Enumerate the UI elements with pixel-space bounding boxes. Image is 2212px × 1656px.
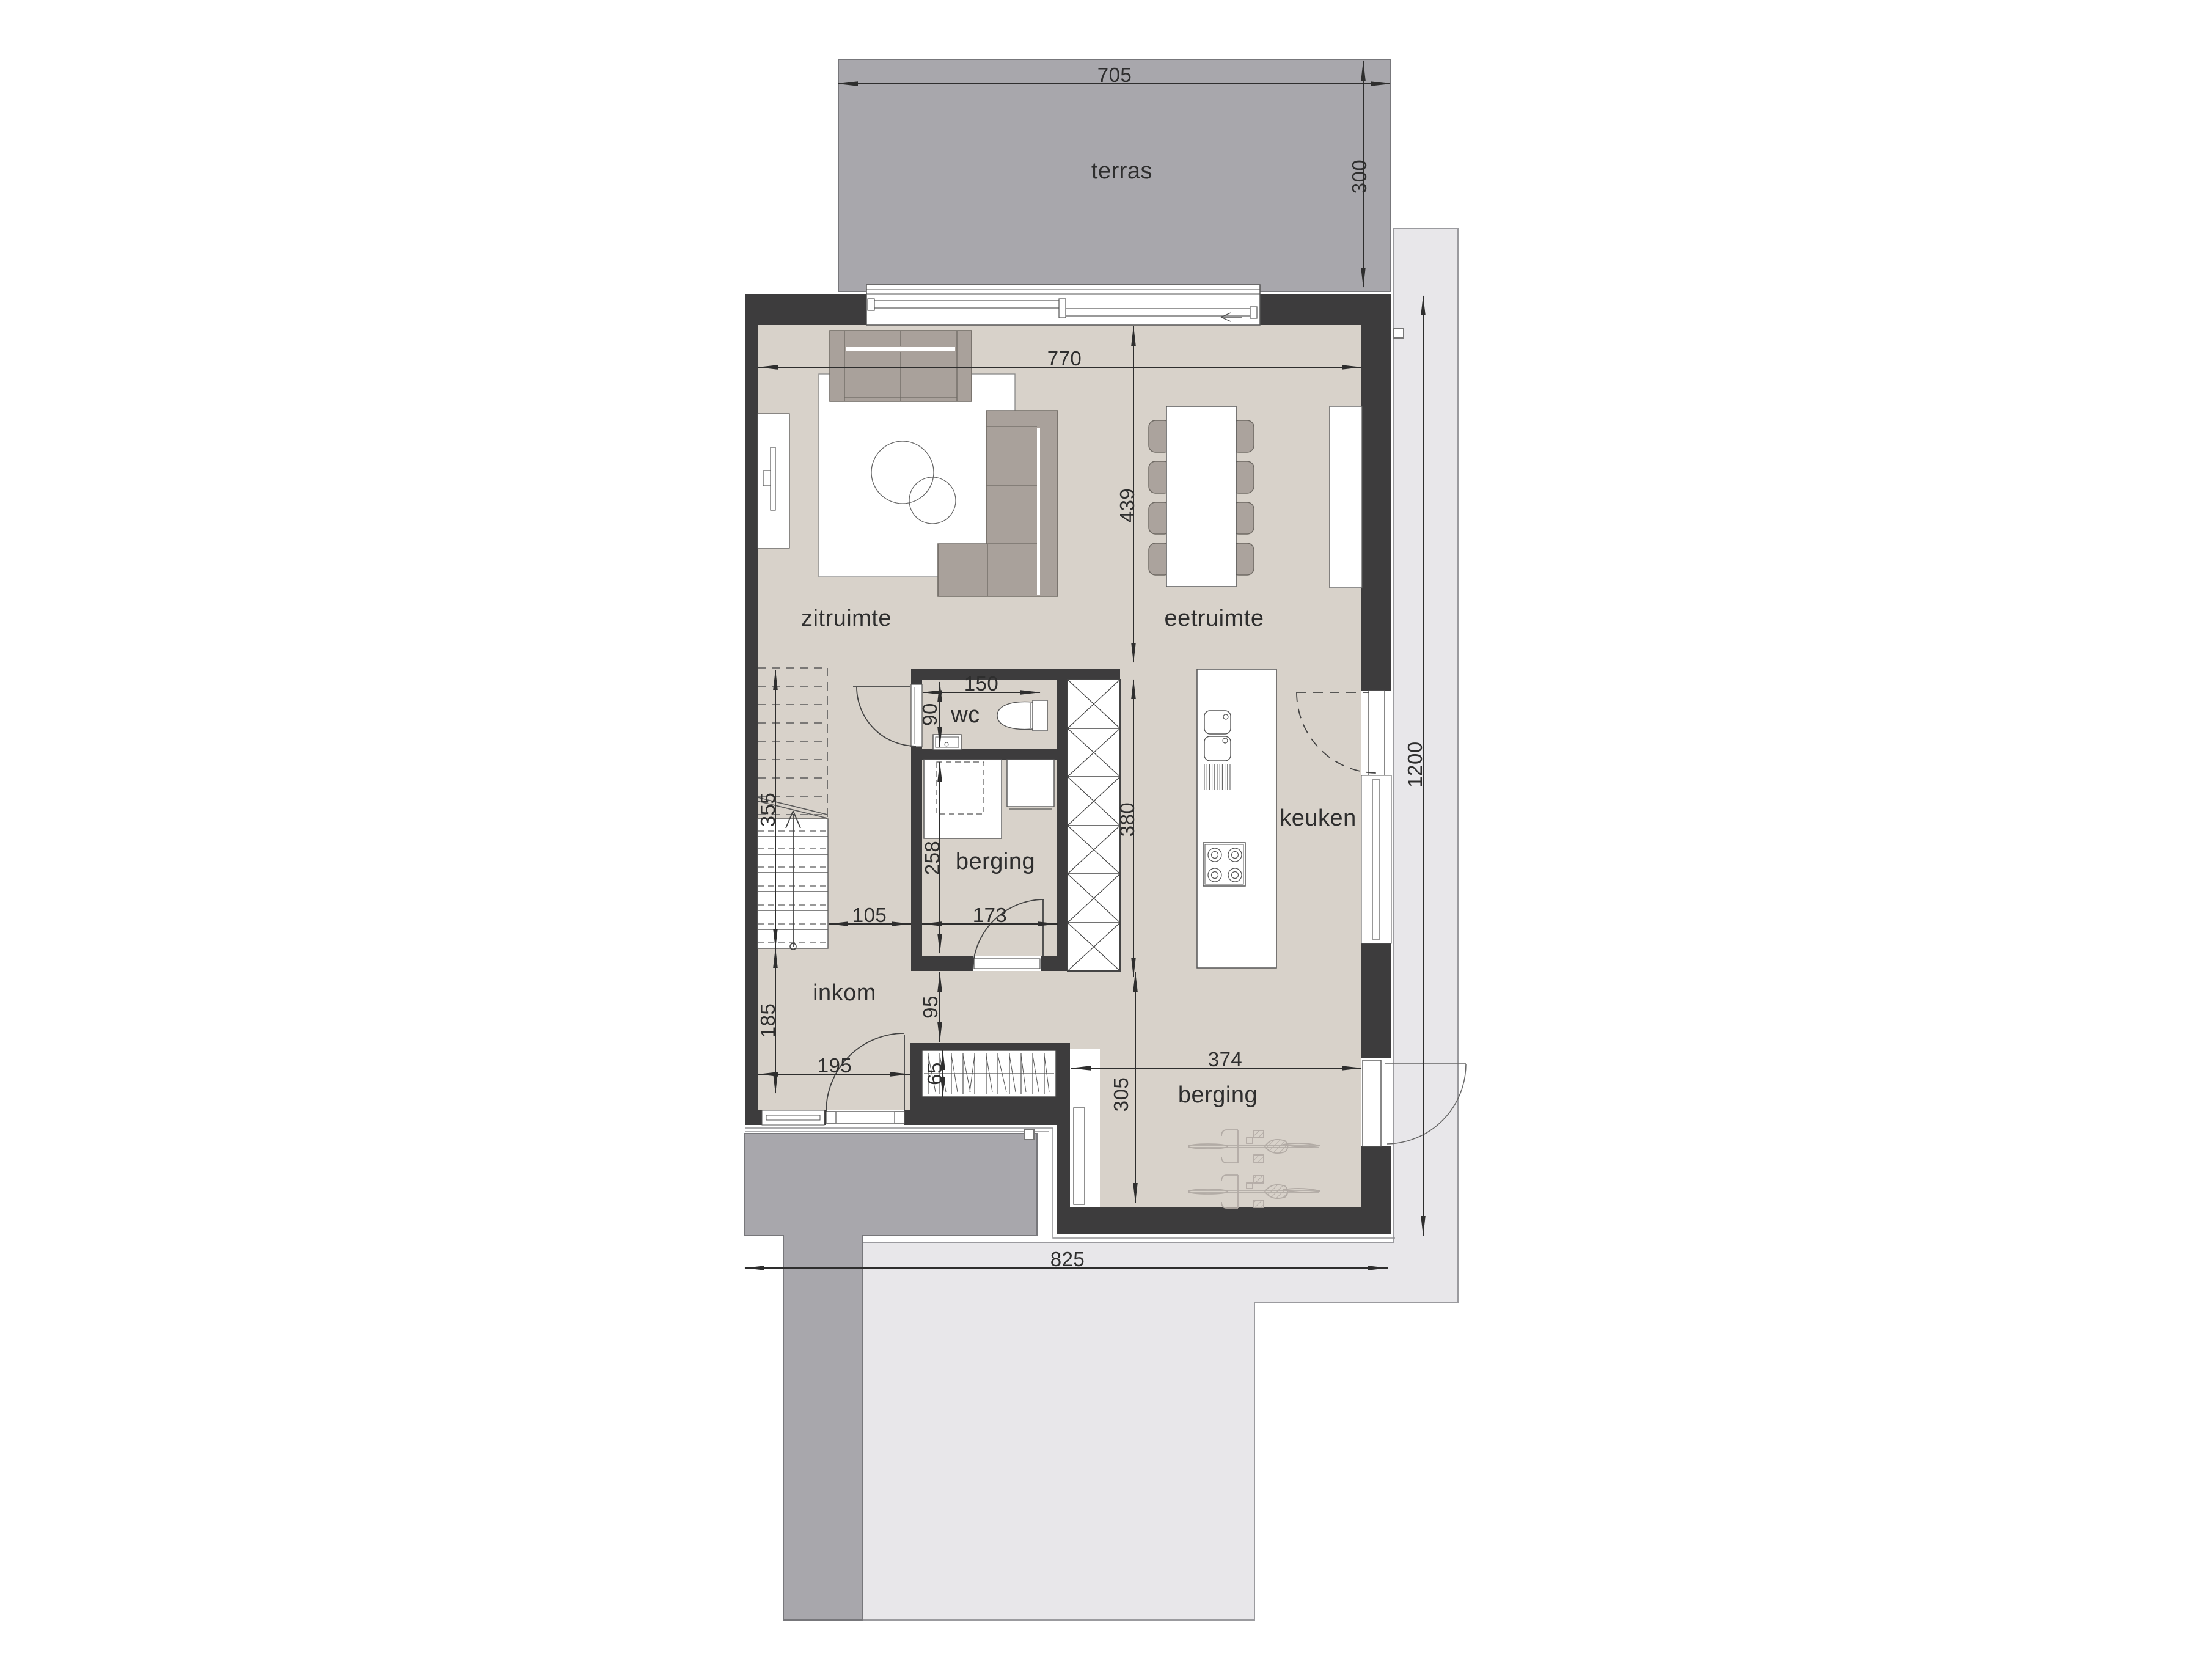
svg-text:173: 173 xyxy=(973,904,1008,926)
svg-text:95: 95 xyxy=(919,995,942,1019)
svg-text:305: 305 xyxy=(1110,1077,1132,1112)
svg-text:inkom: inkom xyxy=(813,980,876,1006)
svg-text:1200: 1200 xyxy=(1404,741,1426,787)
svg-text:eetruimte: eetruimte xyxy=(1165,606,1264,631)
svg-text:300: 300 xyxy=(1348,159,1371,194)
svg-text:keuken: keuken xyxy=(1280,805,1357,831)
svg-text:zitruimte: zitruimte xyxy=(801,606,892,631)
svg-text:65: 65 xyxy=(923,1062,946,1085)
svg-text:825: 825 xyxy=(1050,1248,1085,1270)
svg-text:berging: berging xyxy=(1178,1082,1258,1108)
svg-text:terras: terras xyxy=(1091,158,1152,184)
svg-text:770: 770 xyxy=(1047,347,1082,370)
svg-text:355: 355 xyxy=(756,793,779,827)
svg-text:374: 374 xyxy=(1208,1048,1243,1071)
svg-text:185: 185 xyxy=(756,1003,779,1038)
svg-text:wc: wc xyxy=(950,702,980,728)
svg-text:705: 705 xyxy=(1097,64,1132,86)
svg-text:90: 90 xyxy=(918,703,941,726)
svg-text:380: 380 xyxy=(1116,802,1138,837)
svg-text:258: 258 xyxy=(921,841,943,876)
svg-text:berging: berging xyxy=(956,849,1035,874)
svg-text:150: 150 xyxy=(964,672,999,695)
svg-text:105: 105 xyxy=(852,904,887,926)
svg-text:195: 195 xyxy=(818,1054,852,1077)
svg-text:439: 439 xyxy=(1116,488,1138,523)
